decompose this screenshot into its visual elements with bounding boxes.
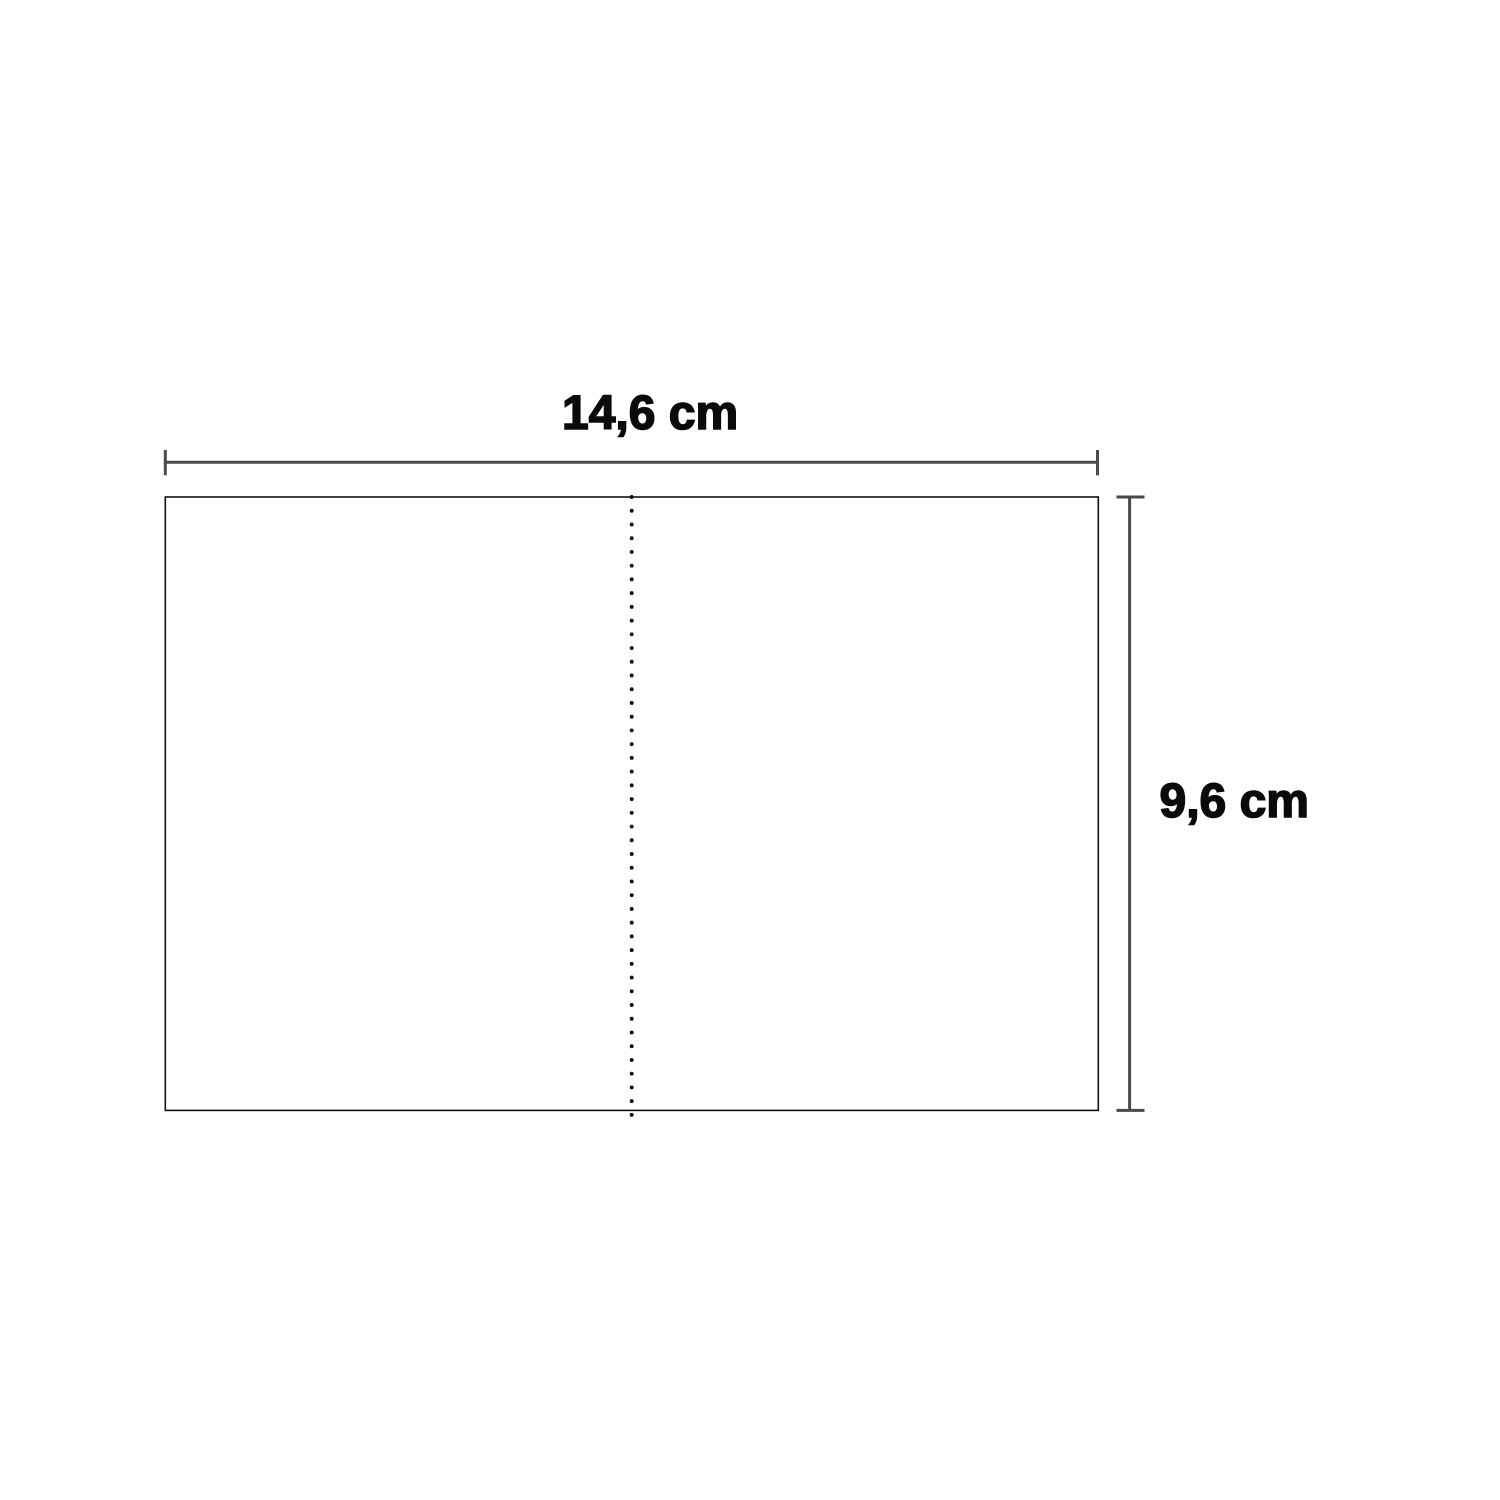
svg-text:9,6 cm: 9,6 cm	[1160, 775, 1309, 828]
svg-text:14,6 cm: 14,6 cm	[562, 387, 738, 440]
